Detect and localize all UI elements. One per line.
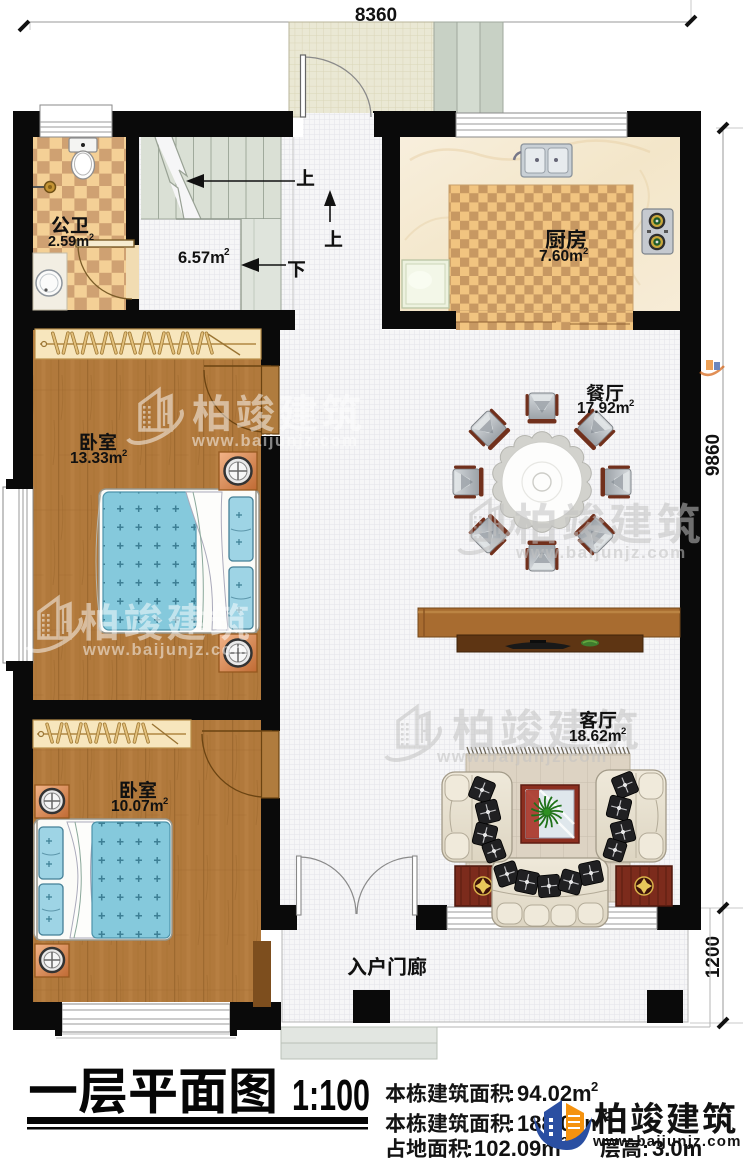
- svg-text:94.02m: 94.02m: [517, 1081, 592, 1106]
- svg-text:2: 2: [621, 726, 626, 737]
- svg-text:2: 2: [591, 1079, 598, 1094]
- svg-text:www.baijunjz.com: www.baijunjz.com: [191, 432, 358, 450]
- svg-text:2: 2: [163, 796, 168, 807]
- svg-text:2: 2: [629, 398, 634, 409]
- svg-text:2: 2: [224, 247, 230, 258]
- svg-text:1200: 1200: [703, 936, 724, 978]
- svg-text::: :: [466, 1138, 473, 1161]
- svg-text:18.62m: 18.62m: [569, 728, 622, 745]
- svg-text:www.baijunjz.com: www.baijunjz.com: [592, 1133, 742, 1150]
- svg-text:2: 2: [583, 246, 588, 257]
- svg-text:www.baijunjz.com: www.baijunjz.com: [82, 641, 249, 659]
- svg-text::: :: [508, 1113, 515, 1136]
- svg-text:www.baijunjz.com: www.baijunjz.com: [515, 543, 687, 562]
- svg-text:1:100: 1:100: [292, 1071, 370, 1120]
- svg-text:9860: 9860: [703, 434, 724, 476]
- svg-text::: :: [508, 1083, 515, 1106]
- svg-text:2.59m: 2.59m: [48, 234, 89, 250]
- svg-text:13.33m: 13.33m: [70, 450, 123, 467]
- svg-text:6.57m: 6.57m: [178, 249, 225, 267]
- svg-text:www.baijunjz.com: www.baijunjz.com: [436, 747, 608, 766]
- svg-text:7.60m: 7.60m: [539, 248, 583, 265]
- svg-text:2: 2: [89, 232, 94, 242]
- svg-text:10.07m: 10.07m: [111, 798, 164, 815]
- svg-text:17.92m: 17.92m: [577, 400, 630, 417]
- svg-text:2: 2: [122, 448, 127, 459]
